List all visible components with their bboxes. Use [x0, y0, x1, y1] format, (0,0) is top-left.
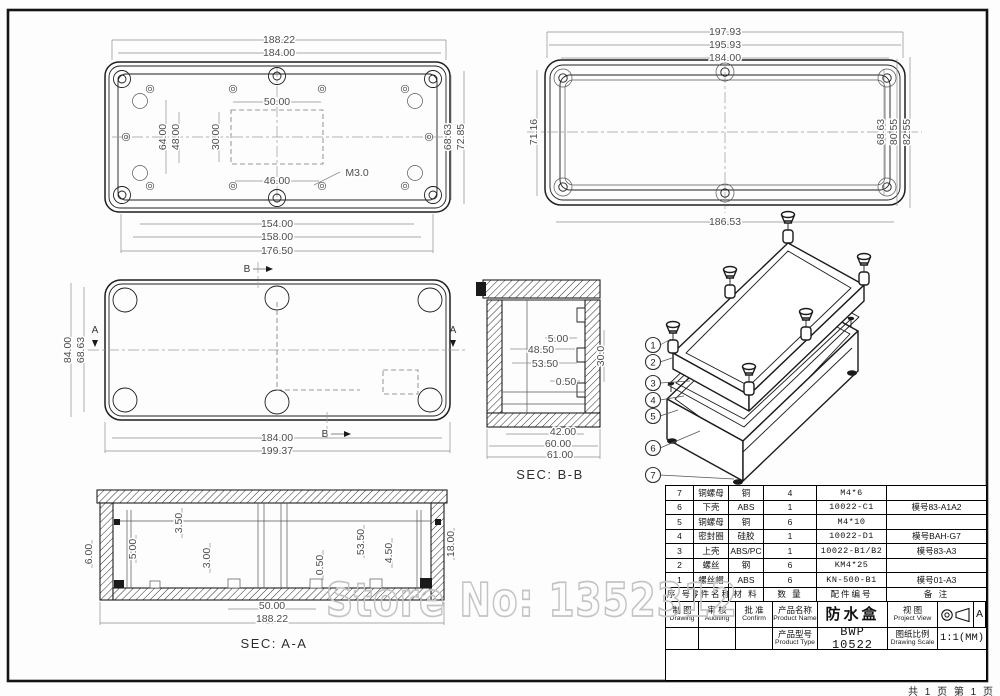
callout-4: 4	[650, 396, 655, 407]
bom-table: 7 铜螺母 铜 4 M4*6 6 下壳 ABS 1 10022-C1 模号83-…	[666, 486, 986, 602]
bom-cell: 1	[764, 544, 817, 559]
dim-label: 84.00	[62, 337, 74, 363]
bom-cell	[887, 486, 986, 501]
bom-cell: 密封圈	[694, 530, 729, 545]
section-a-marker: A	[92, 325, 99, 336]
section-aa-label: SEC: A-A	[241, 636, 308, 651]
dim-label: 30.00	[210, 124, 222, 150]
bom-header-no: 序 号	[666, 588, 694, 603]
title-scale-label: 图纸比例 Drawing Scale	[888, 628, 938, 650]
bom-cell: 3	[666, 544, 694, 559]
title-block: 制 图 Drawing 审 核 Auditing 批 准 Confirm 产品名…	[666, 602, 986, 650]
dim-label: 46.00	[264, 175, 290, 187]
bom-cell: 1	[764, 530, 817, 545]
dim-label: 72.85	[455, 124, 467, 150]
title-confirm: 批 准 Confirm	[736, 602, 773, 628]
dim-label: 80.55	[888, 119, 900, 145]
dim-label: 5.00	[127, 539, 139, 560]
dim-label: 0.50	[556, 376, 577, 388]
bom-cell: KN-500-B1	[817, 573, 887, 588]
product-name-value: 防水盒	[818, 602, 888, 628]
dim-label: 82.55	[901, 119, 913, 145]
bom-cell: 6	[764, 573, 817, 588]
bom-cell: ABS	[729, 573, 764, 588]
dim-label: 184.00	[263, 47, 295, 59]
bom-cell	[887, 515, 986, 530]
dim-label: 50.00	[259, 600, 285, 612]
dim-label: 3.50	[173, 513, 185, 534]
bom-cell: 铜螺母	[694, 515, 729, 530]
signature-cell-empty	[736, 628, 773, 650]
dim-label: 48.50	[528, 344, 554, 356]
dim-label: 197.93	[709, 26, 741, 38]
bom-cell: 模号83-A1A2	[887, 501, 986, 516]
title-block-empty-strip	[666, 650, 986, 680]
bom-cell: 上壳	[694, 544, 729, 559]
view-section-aa: 6.00 5.00 3.50 3.00 0.50 53.50 4.50 18.0…	[83, 490, 457, 651]
bom-cell	[887, 559, 986, 574]
thread-label: M3.0	[345, 167, 369, 179]
drawing-sheet: 188.22 184.00 64.00 48.00 50.00 30.00 46…	[0, 0, 1000, 696]
bom-cell: 螺丝	[694, 559, 729, 574]
dim-label: 158.00	[261, 231, 293, 243]
view-lid-plan: 197.93 195.93 184.00 71.16 68.63 80.55 8…	[527, 26, 922, 228]
dim-label: 53.50	[355, 529, 367, 555]
bom-cell: 6	[764, 515, 817, 530]
dim-label: 0.50	[314, 555, 326, 576]
view-exploded-isometric: 1 2 3 4 5 6 7	[646, 212, 871, 485]
title-project-view-label: 视 图 Project View	[888, 602, 938, 628]
dim-label: 4.50	[383, 543, 395, 564]
bom-cell: 铜	[729, 486, 764, 501]
dim-label: 30.0	[595, 346, 607, 367]
dim-label: 64.00	[157, 124, 169, 150]
bom-cell: 下壳	[694, 501, 729, 516]
dim-label: 61.00	[547, 449, 573, 461]
dim-label: 50.00	[264, 96, 290, 108]
dim-label: 188.22	[263, 34, 295, 46]
title-product-name-label: 产品名称 Product Name	[773, 602, 818, 628]
bom-cell: KM4*25	[817, 559, 887, 574]
bom-header-material: 材 料	[729, 588, 764, 603]
section-b-marker: B	[244, 264, 251, 275]
signature-cell-empty	[666, 628, 699, 650]
callout-1: 1	[650, 341, 655, 352]
bom-cell: 模号83-A3	[887, 544, 986, 559]
bom-header-name: 零件名称	[694, 588, 729, 603]
bom-cell: 1	[764, 501, 817, 516]
bom-cell: ABS/PC	[729, 544, 764, 559]
dim-label: 6.00	[83, 544, 95, 565]
bom-header-part-no: 配件编号	[817, 588, 887, 603]
dim-label: 18.00	[445, 531, 457, 557]
bom-cell: 硅胶	[729, 530, 764, 545]
callout-2: 2	[650, 358, 655, 369]
dim-label: 68.63	[875, 119, 887, 145]
callout-3: 3	[650, 379, 655, 390]
bom-cell: 6	[666, 501, 694, 516]
callout-6: 6	[650, 444, 655, 455]
bom-cell: 7	[666, 486, 694, 501]
bom-cell: 铜螺母	[694, 486, 729, 501]
dim-label: 42.00	[550, 426, 576, 438]
dim-label: 176.50	[261, 245, 293, 257]
view-section-bb: 5.00 48.50 53.50 0.50 30.0 42.00 60.00 6…	[476, 280, 607, 482]
dim-label: 68.63	[75, 337, 87, 363]
dim-label: 68.63	[442, 124, 454, 150]
bom-and-title-block: 7 铜螺母 铜 4 M4*6 6 下壳 ABS 1 10022-C1 模号83-…	[665, 485, 987, 681]
bom-header-qty: 数 量	[764, 588, 817, 603]
dim-label: 188.22	[256, 613, 288, 625]
bom-cell: 5	[666, 515, 694, 530]
dim-label: 154.00	[261, 218, 293, 230]
dim-label: 199.37	[261, 445, 293, 457]
view-box-outer-plan: A A B B 84.00 68.63 184.00 199.37	[62, 262, 465, 457]
bom-cell: 模号01-A3	[887, 573, 986, 588]
bom-header-note: 备 注	[887, 588, 986, 603]
product-type-value: BWP 10522	[818, 628, 888, 650]
revision-value: A	[974, 602, 986, 628]
bom-cell: 钢	[729, 559, 764, 574]
bom-cell: 10022-C1	[817, 501, 887, 516]
bom-cell: 1	[666, 573, 694, 588]
callout-7: 7	[650, 471, 655, 482]
bom-cell: 2	[666, 559, 694, 574]
dim-label: 195.93	[709, 39, 741, 51]
bom-cell: ABS	[729, 501, 764, 516]
bom-cell: M4*6	[817, 486, 887, 501]
title-drawing: 制 图 Drawing	[666, 602, 699, 628]
bom-cell: 螺丝帽	[694, 573, 729, 588]
section-a-marker: A	[450, 325, 457, 336]
bom-cell: 6	[764, 559, 817, 574]
dim-label: 186.53	[709, 216, 741, 228]
bom-cell: 4	[764, 486, 817, 501]
projection-symbol	[938, 602, 974, 628]
scale-value: 1:1(MM)	[938, 628, 986, 650]
view-bottom-shell-inner-plan: 188.22 184.00 64.00 48.00 50.00 30.00 46…	[105, 34, 467, 257]
section-bb-label: SEC: B-B	[516, 467, 584, 482]
page-count-footer: 共 1 页 第 1 页	[908, 683, 995, 696]
bom-cell: 模号BAH-G7	[887, 530, 986, 545]
dim-label: 184.00	[709, 52, 741, 64]
bom-cell: 铜	[729, 515, 764, 530]
dim-label: 53.50	[532, 358, 558, 370]
bom-cell: 4	[666, 530, 694, 545]
title-product-type-label: 产品型号 Product Type	[773, 628, 818, 650]
bom-cell: 10022-B1/B2	[817, 544, 887, 559]
callout-5: 5	[650, 412, 655, 423]
dim-label: 184.00	[261, 432, 293, 444]
dim-label: 71.16	[528, 119, 540, 145]
dim-label: 3.00	[201, 548, 213, 569]
title-auditing: 审 核 Auditing	[699, 602, 736, 628]
bom-cell: 10022-D1	[817, 530, 887, 545]
bom-cell: M4*10	[817, 515, 887, 530]
third-angle-projection-icon	[940, 607, 972, 623]
dim-label: 48.00	[170, 124, 182, 150]
signature-cell-empty	[699, 628, 736, 650]
